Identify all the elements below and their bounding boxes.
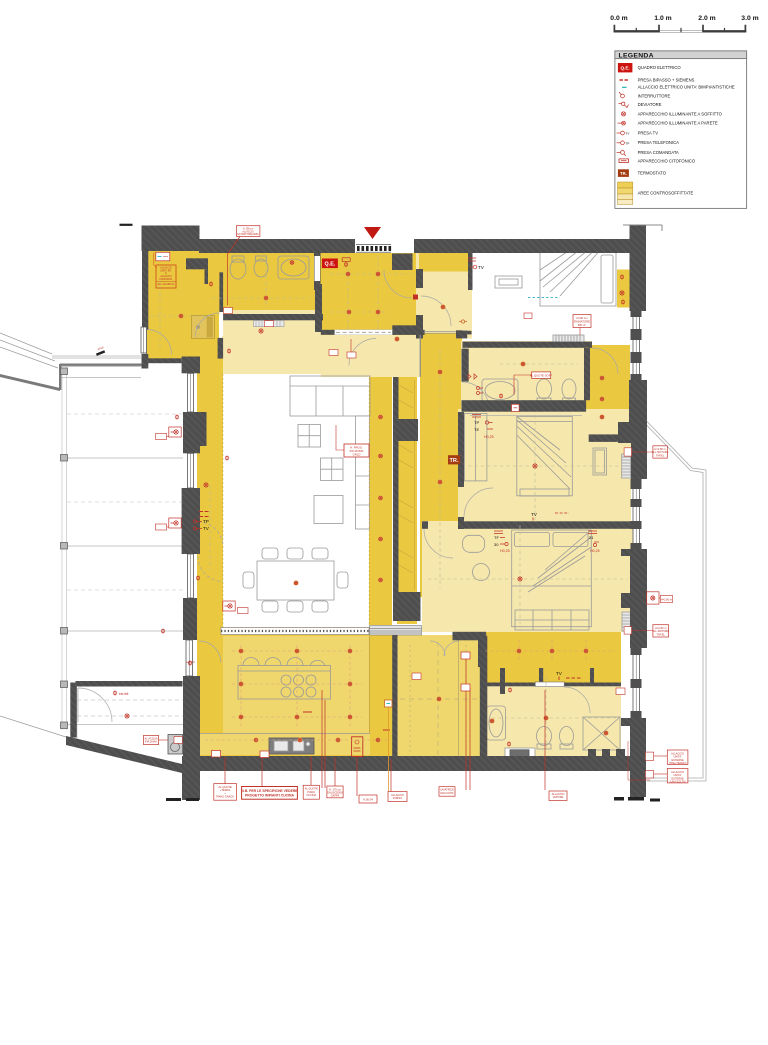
svg-text:CUCINA: CUCINA [306,793,316,797]
svg-text:UNITA' INT.: UNITA' INT. [160,269,172,272]
svg-text:PIA.SNAK: PIA.SNAK [145,740,157,744]
svg-text:est.lett: est.lett [119,692,129,696]
svg-text:TE: TE [474,427,479,432]
svg-text:FORNO: FORNO [393,796,402,800]
svg-text:N.B. PER LE SPECIFICHE VEDERE: N.B. PER LE SPECIFICHE VEDERE [241,789,298,793]
svg-text:ESTRATTORE 8MM: ESTRATTORE 8MM [238,233,259,236]
svg-text:(TRE+TERMO): (TRE+TERMO) [669,761,687,765]
svg-text:ASCIUGTR.: ASCIUGTR. [440,791,454,795]
svg-text:H0,25: H0,25 [590,549,600,553]
svg-text:ALLACCIO: ALLACCIO [160,267,172,270]
svg-text:H0,25: H0,25 [484,435,494,439]
svg-text:Q.E.: Q.E. [325,261,336,267]
svg-text:TP: TP [474,420,479,425]
svg-text:H. 298 cm: H. 298 cm [243,229,254,231]
svg-text:3.0 m: 3.0 m [741,15,758,22]
svg-text:PRESA BIPASSO + SIEMENS: PRESA BIPASSO + SIEMENS [638,77,695,82]
svg-text:TF: TF [494,535,499,540]
svg-text:A.05.04: A.05.04 [363,797,373,801]
svg-text:1.0 m: 1.0 m [654,15,671,22]
svg-text:APPARECCHIO ILLUMINANTE A PARE: APPARECCHIO ILLUMINANTE A PARETE [638,121,718,126]
svg-text:TP: TP [203,519,209,524]
svg-text:AL.QUOTE SOFF.: AL.QUOTE SOFF. [530,373,553,377]
svg-text:30: 30 [494,542,499,547]
svg-text:QUADRO ELETTRICO: QUADRO ELETTRICO [638,65,682,70]
svg-text:PIANO SNACK: PIANO SNACK [216,795,234,799]
svg-text:APPARECCHIO ILLUMINANTE A SOFF: APPARECCHIO ILLUMINANTE A SOFFITTO [638,111,723,116]
svg-text:(UNA SOLTA): (UNA SOLTA) [670,780,686,784]
svg-text:CAPPA: CAPPA [331,794,340,798]
svg-text:PRESA TELEFONICA: PRESA TELEFONICA [638,140,680,145]
svg-text:TERMOSTATO: TERMOSTATO [638,171,667,176]
svg-text:21: 21 [589,535,594,540]
svg-text:DEVIATORE: DEVIATORE [638,102,662,107]
svg-text:GRLD: GRLD [353,452,361,456]
svg-text:VAPORE: VAPORE [553,795,564,799]
svg-text:TP: TP [626,141,630,145]
svg-text:H=2,80 m: H=2,80 m [661,597,672,601]
svg-text:est.lett: est.lett [186,660,195,664]
svg-text:ALLACCIO ELETTRICO UNITA' BIMP: ALLACCIO ELETTRICO UNITA' BIMPIANTISTICH… [638,85,735,90]
svg-text:TV: TV [203,526,210,531]
svg-text:PRESA TV: PRESA TV [638,130,659,135]
svg-text:ALLACCIO: ALLACCIO [242,230,254,233]
svg-text:PROGETTO IMPIANTI CUCINA: PROGETTO IMPIANTI CUCINA [245,793,294,797]
svg-text:TV: TV [556,671,563,676]
svg-text:TR.: TR. [620,171,627,176]
svg-text:TV: TV [531,512,538,517]
svg-text:Q.E.: Q.E. [620,66,629,71]
svg-text:PRESA COMANDATA: PRESA COMANDATA [638,150,679,155]
svg-text:LEGENDA: LEGENDA [619,52,654,59]
svg-text:AREE CONTROSOFFITTATE: AREE CONTROSOFFITTATE [638,191,694,196]
svg-text:APPARECCHIO CITOFONICO: APPARECCHIO CITOFONICO [638,158,696,163]
svg-text:0.0 m: 0.0 m [610,15,627,22]
svg-text:2.0 m: 2.0 m [698,15,715,22]
svg-text:TAP.EL: TAP.EL [656,632,665,636]
svg-text:INTERRUTTORE: INTERRUTTORE [638,93,671,98]
svg-text:TV: TV [626,132,630,136]
svg-text:ALLACCIO: ALLACCIO [160,275,172,278]
svg-text:TV: TV [478,265,485,270]
svg-text:(EL.+SCARICO): (EL.+SCARICO) [158,283,175,286]
svg-text:CONDIZION.: CONDIZION. [159,279,173,281]
svg-text:TAP.EL: TAP.EL [656,453,665,457]
svg-text:TR.: TR. [449,458,458,464]
svg-text:BR.-P.: BR.-P. [578,323,586,327]
svg-text:H0,25: H0,25 [500,549,510,553]
